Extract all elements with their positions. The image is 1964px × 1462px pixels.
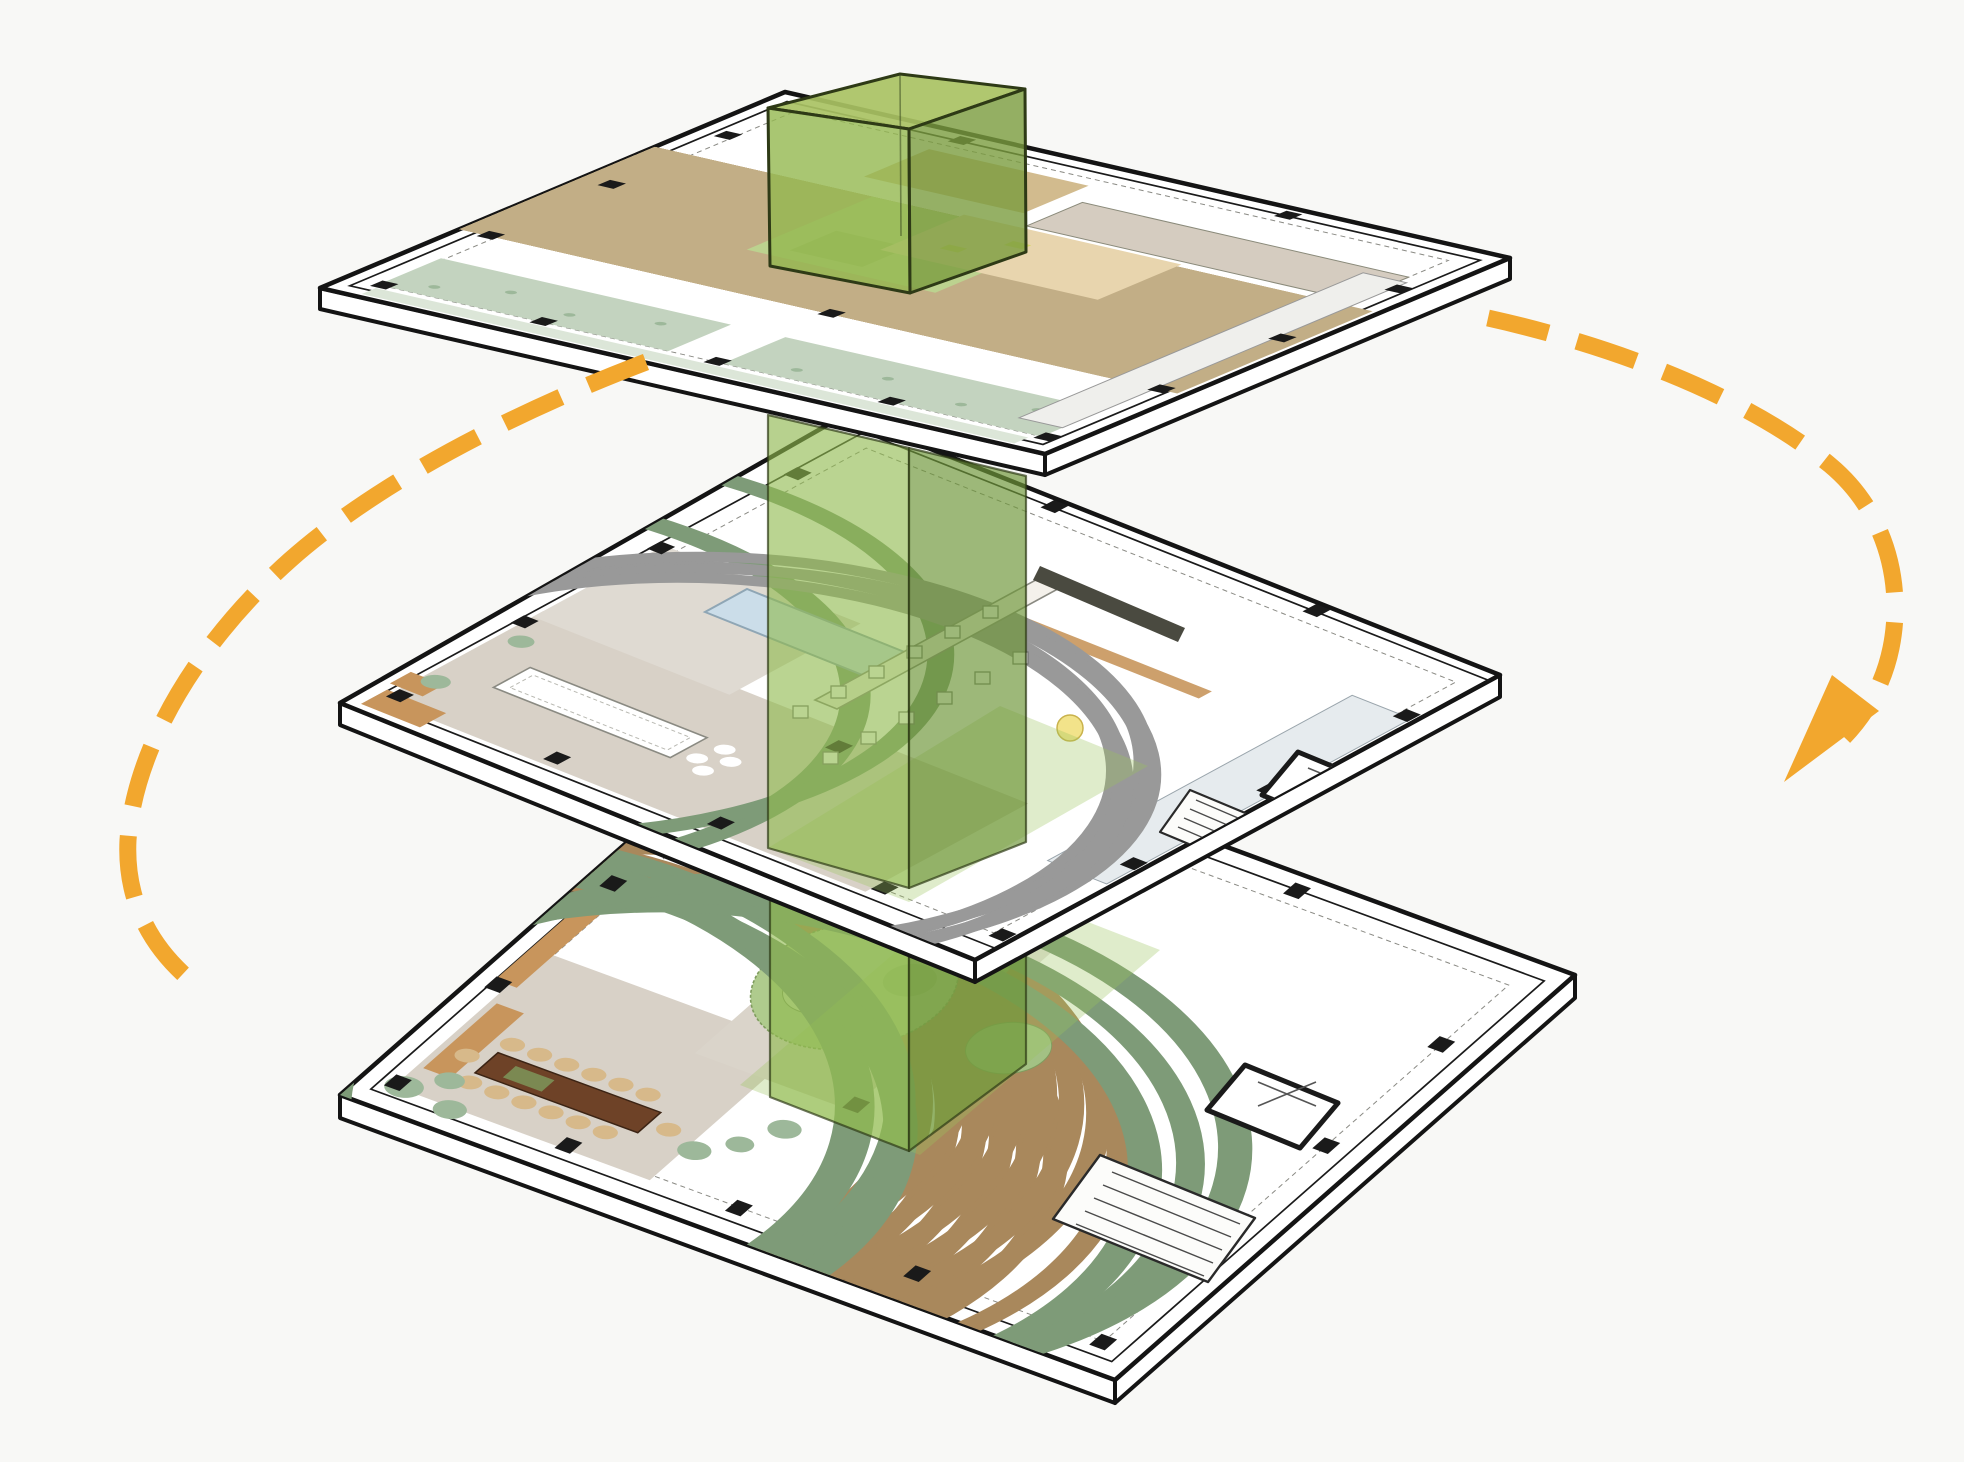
diagram-canvas <box>0 0 1964 1462</box>
exploded-axon-diagram <box>0 0 1964 1462</box>
background <box>0 0 1964 1462</box>
